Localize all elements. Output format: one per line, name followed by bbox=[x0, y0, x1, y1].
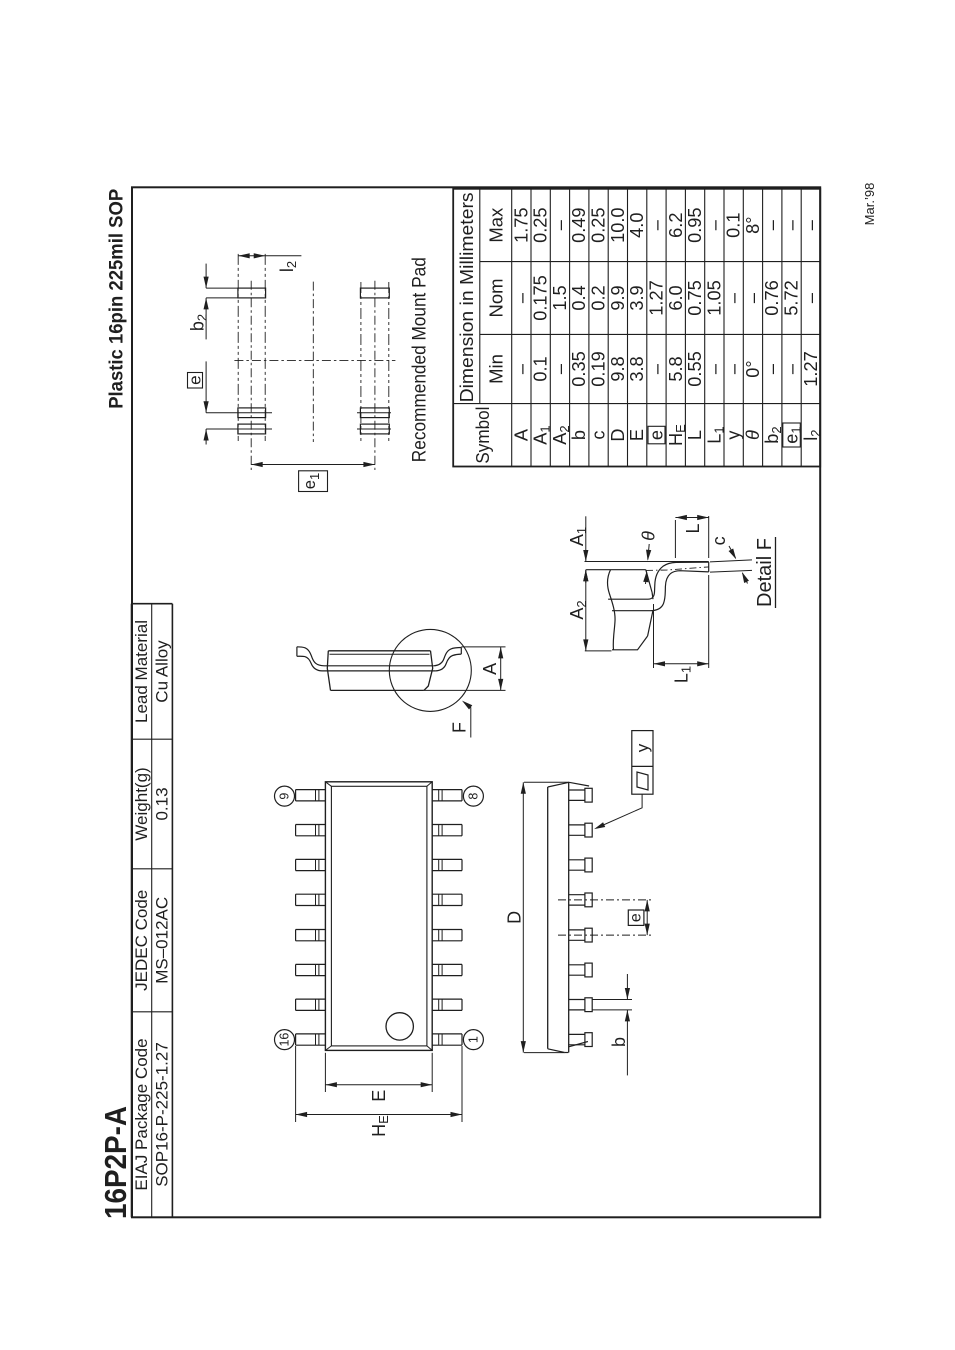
svg-text:0.25: 0.25 bbox=[531, 207, 551, 242]
svg-text:Max: Max bbox=[485, 207, 506, 243]
svg-text:16: 16 bbox=[278, 1033, 292, 1047]
svg-text:–: – bbox=[724, 363, 744, 374]
svg-text:E: E bbox=[369, 1090, 389, 1102]
svg-text:θ: θ bbox=[639, 531, 659, 541]
svg-text:Lead Material: Lead Material bbox=[132, 620, 151, 723]
svg-text:Recommended Mount Pad: Recommended Mount Pad bbox=[409, 257, 431, 462]
svg-text:F: F bbox=[450, 722, 470, 733]
svg-text:1.27: 1.27 bbox=[647, 280, 667, 315]
svg-text:b: b bbox=[609, 1037, 629, 1047]
svg-text:–: – bbox=[762, 363, 782, 374]
svg-text:θ: θ bbox=[743, 430, 763, 440]
svg-text:Dimension in Millimeters: Dimension in Millimeters bbox=[457, 192, 477, 402]
svg-text:0.75: 0.75 bbox=[685, 280, 705, 315]
svg-text:0.13: 0.13 bbox=[153, 787, 172, 820]
svg-text:0.2: 0.2 bbox=[589, 285, 609, 310]
svg-text:0.95: 0.95 bbox=[685, 207, 705, 242]
svg-text:Min: Min bbox=[485, 354, 506, 384]
svg-text:–: – bbox=[647, 219, 667, 230]
svg-text:0.19: 0.19 bbox=[589, 351, 609, 386]
svg-text:b: b bbox=[569, 430, 589, 440]
svg-text:–: – bbox=[762, 219, 782, 230]
svg-text:–: – bbox=[704, 219, 724, 230]
svg-text:0°: 0° bbox=[743, 360, 763, 377]
svg-text:0.175: 0.175 bbox=[531, 275, 551, 321]
svg-text:5.8: 5.8 bbox=[666, 356, 686, 381]
svg-text:8°: 8° bbox=[743, 217, 763, 234]
svg-text:1.05: 1.05 bbox=[704, 280, 724, 315]
svg-text:9.9: 9.9 bbox=[608, 285, 628, 310]
svg-text:e: e bbox=[628, 913, 645, 922]
svg-text:EIAJ Package Code: EIAJ Package Code bbox=[132, 1038, 151, 1190]
svg-text:3.9: 3.9 bbox=[627, 285, 647, 310]
svg-text:L: L bbox=[683, 523, 703, 533]
svg-text:–: – bbox=[511, 292, 531, 303]
svg-text:Detail F: Detail F bbox=[754, 538, 776, 607]
svg-text:Plastic 16pin 225mil SOP: Plastic 16pin 225mil SOP bbox=[106, 189, 128, 409]
svg-text:5.72: 5.72 bbox=[782, 280, 802, 315]
svg-text:1.75: 1.75 bbox=[511, 207, 531, 242]
svg-text:c: c bbox=[709, 536, 729, 545]
svg-text:–: – bbox=[704, 363, 724, 374]
svg-text:9: 9 bbox=[278, 793, 292, 800]
svg-text:JEDEC Code: JEDEC Code bbox=[132, 890, 151, 991]
svg-text:–: – bbox=[724, 292, 744, 303]
svg-text:A: A bbox=[480, 663, 500, 675]
svg-text:0.49: 0.49 bbox=[569, 207, 589, 242]
svg-text:1: 1 bbox=[466, 1036, 480, 1043]
svg-text:4.0: 4.0 bbox=[627, 213, 647, 238]
svg-text:6.0: 6.0 bbox=[666, 285, 686, 310]
svg-text:0.1: 0.1 bbox=[531, 356, 551, 381]
svg-text:0.4: 0.4 bbox=[569, 285, 589, 310]
svg-text:9.8: 9.8 bbox=[608, 356, 628, 381]
svg-text:–: – bbox=[550, 219, 570, 230]
svg-text:D: D bbox=[608, 429, 628, 442]
svg-text:e: e bbox=[647, 430, 667, 440]
svg-text:8: 8 bbox=[466, 793, 480, 800]
svg-text:1.5: 1.5 bbox=[550, 285, 570, 310]
svg-text:SOP16-P-225-1.27: SOP16-P-225-1.27 bbox=[153, 1042, 172, 1187]
svg-text:D: D bbox=[505, 911, 525, 924]
svg-text:–: – bbox=[782, 219, 802, 230]
svg-text:0.25: 0.25 bbox=[589, 207, 609, 242]
svg-text:16P2P-A: 16P2P-A bbox=[98, 1106, 133, 1219]
svg-text:10.0: 10.0 bbox=[608, 207, 628, 242]
svg-text:y: y bbox=[633, 743, 652, 752]
svg-text:e: e bbox=[186, 375, 205, 384]
svg-text:E: E bbox=[627, 429, 647, 441]
svg-text:–: – bbox=[511, 363, 531, 374]
svg-text:L: L bbox=[685, 430, 705, 440]
svg-text:0.76: 0.76 bbox=[762, 280, 782, 315]
svg-text:c: c bbox=[589, 431, 609, 440]
svg-text:1.27: 1.27 bbox=[801, 351, 821, 386]
svg-text:Symbol: Symbol bbox=[472, 407, 493, 464]
svg-text:0.35: 0.35 bbox=[569, 351, 589, 386]
svg-text:–: – bbox=[743, 292, 763, 303]
svg-text:–: – bbox=[782, 363, 802, 374]
svg-text:–: – bbox=[647, 363, 667, 374]
svg-text:0.55: 0.55 bbox=[685, 351, 705, 386]
svg-text:–: – bbox=[801, 292, 821, 303]
svg-text:Cu Alloy: Cu Alloy bbox=[153, 640, 172, 703]
svg-text:3.8: 3.8 bbox=[627, 356, 647, 381]
svg-text:y: y bbox=[724, 430, 744, 440]
svg-text:MS–012AC: MS–012AC bbox=[153, 897, 172, 984]
svg-text:Nom: Nom bbox=[485, 278, 506, 317]
svg-text:6.2: 6.2 bbox=[666, 213, 686, 238]
svg-text:Mar.’98: Mar.’98 bbox=[862, 183, 877, 226]
svg-text:–: – bbox=[550, 363, 570, 374]
svg-text:A: A bbox=[511, 428, 531, 441]
svg-text:0.1: 0.1 bbox=[724, 213, 744, 238]
svg-text:–: – bbox=[801, 219, 821, 230]
svg-text:Weight(g): Weight(g) bbox=[132, 767, 151, 840]
